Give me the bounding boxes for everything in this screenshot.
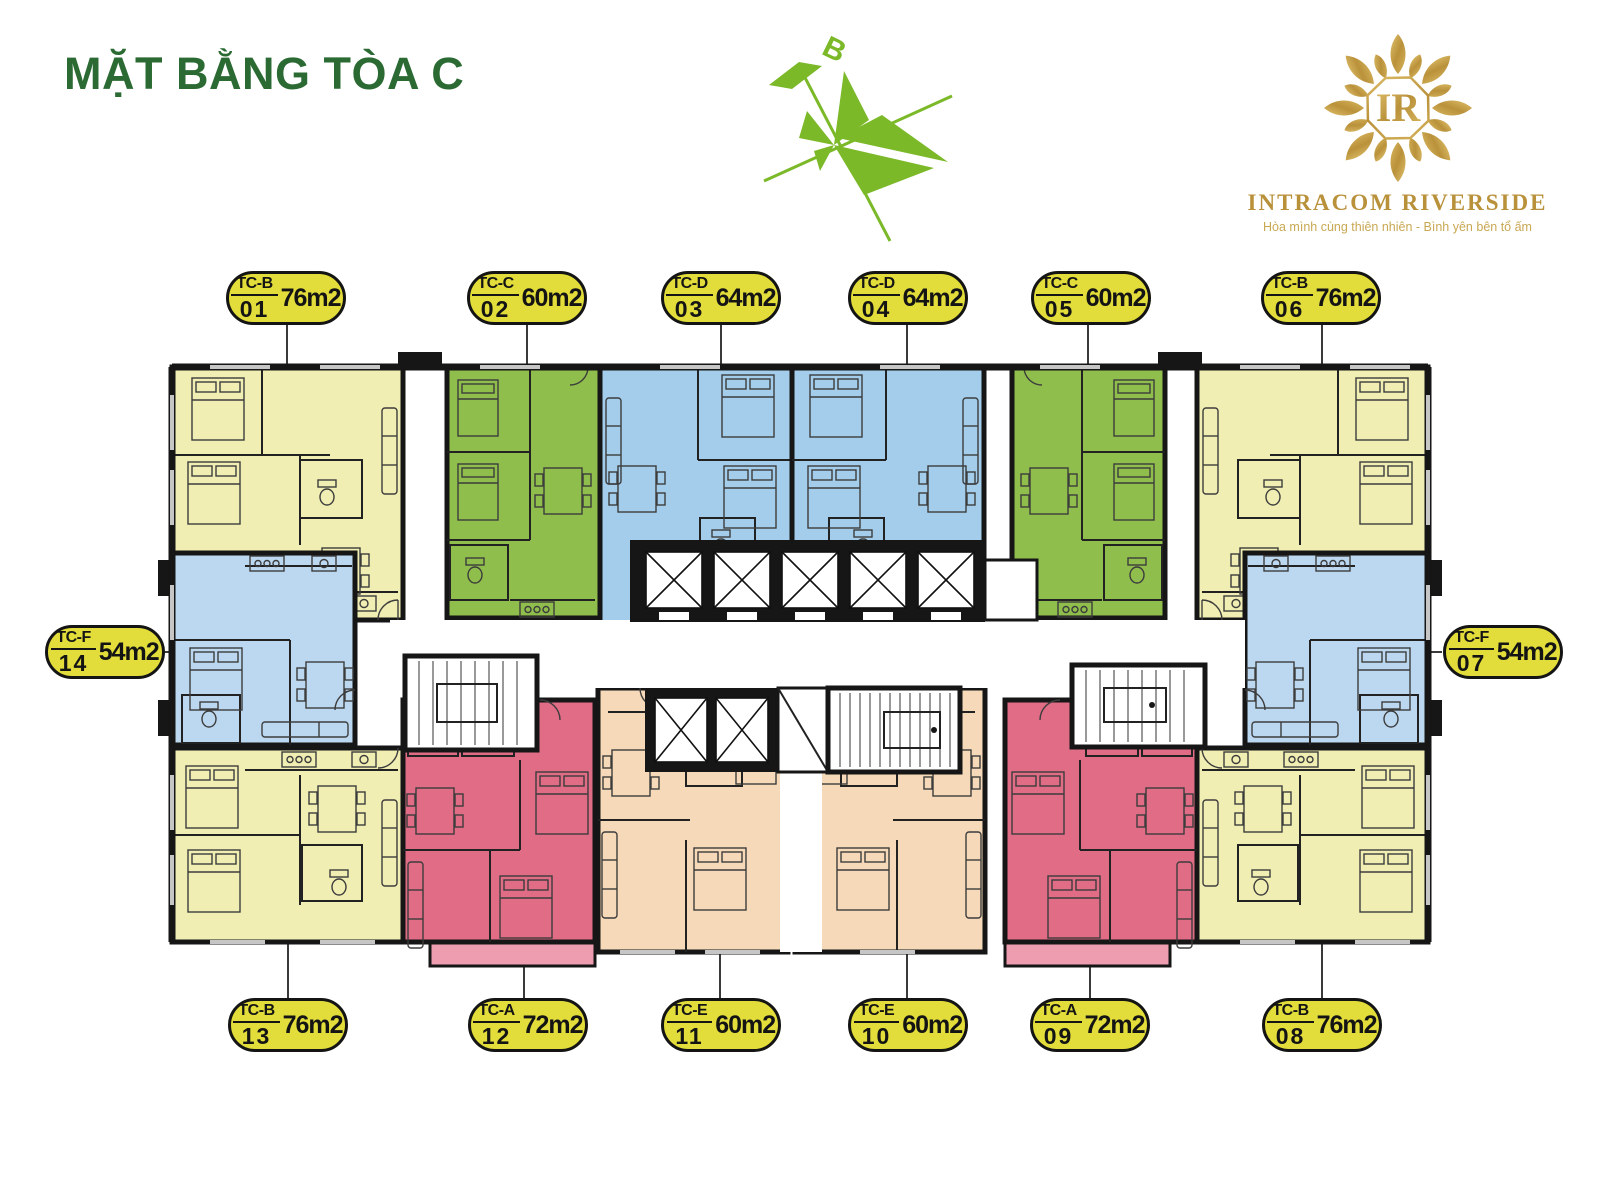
unit-area: 64m2 [716, 284, 776, 313]
unit-area: 76m2 [281, 284, 341, 313]
unit-badge-02: TC-C0260m2 [467, 271, 587, 325]
unit-code: TC-A [1035, 1003, 1081, 1023]
unit-badge-14: TC-F1454m2 [45, 625, 165, 679]
stairs-right [1072, 665, 1205, 747]
compass-north-label: B [817, 30, 851, 69]
north-compass: B [742, 10, 957, 255]
unit-code: TC-B [1266, 276, 1312, 296]
unit-number: 13 [242, 1023, 272, 1048]
unit-number: 01 [240, 296, 270, 321]
unit-area: 60m2 [1086, 284, 1146, 313]
elevator-pair [645, 688, 778, 772]
utility-room [985, 560, 1037, 620]
unit-area: 72m2 [523, 1011, 583, 1040]
brand-name: INTRACOM RIVERSIDE [1245, 190, 1550, 216]
unit-number: 06 [1275, 296, 1305, 321]
unit-number: 10 [862, 1023, 892, 1048]
unit-code: TC-D [853, 276, 899, 296]
unit-number: 14 [59, 650, 89, 675]
unit-badge-04: TC-D0464m2 [848, 271, 968, 325]
unit-area: 72m2 [1085, 1011, 1145, 1040]
unit-number: 09 [1044, 1023, 1074, 1048]
unit-area: 64m2 [903, 284, 963, 313]
unit-badge-01: TC-B0176m2 [226, 271, 346, 325]
floorplan-page: { "title": "MẶT BẰNG TÒA C", "compass": … [0, 0, 1600, 1197]
page-title: MẶT BẰNG TÒA C [64, 48, 464, 100]
unit-code: TC-F [1449, 630, 1493, 650]
unit-code: TC-B [233, 1003, 279, 1023]
unit-code: TC-E [854, 1003, 899, 1023]
unit-number: 02 [481, 296, 511, 321]
unit-number: 11 [675, 1023, 703, 1048]
unit-area: 54m2 [1497, 638, 1557, 667]
unit-badge-12: TC-A1272m2 [468, 998, 588, 1052]
unit-code: TC-B [231, 276, 277, 296]
logo-flower-icon: IR [1313, 28, 1483, 188]
unit-area: 60m2 [715, 1011, 775, 1040]
unit-code: TC-E [667, 1003, 712, 1023]
unit-area: 76m2 [1316, 284, 1376, 313]
unit-area: 60m2 [522, 284, 582, 313]
logo-monogram: IR [1375, 85, 1421, 130]
stairs-left [405, 656, 537, 750]
stairs-center [828, 688, 960, 772]
unit-code: TC-A [473, 1003, 519, 1023]
elevator-bank [630, 540, 985, 622]
unit-code: TC-C [472, 276, 518, 296]
unit-code: TC-C [1036, 276, 1082, 296]
unit-badge-13: TC-B1376m2 [228, 998, 348, 1052]
unit-number: 08 [1276, 1023, 1306, 1048]
unit-badge-10: TC-E1060m2 [848, 998, 968, 1052]
unit-badge-06: TC-B0676m2 [1261, 271, 1381, 325]
brand-tagline: Hòa mình cùng thiên nhiên - Bình yên bên… [1245, 220, 1550, 234]
unit-number: 05 [1045, 296, 1075, 321]
compass-graphic: B [764, 30, 952, 241]
unit-badge-05: TC-C0560m2 [1031, 271, 1151, 325]
unit-area: 60m2 [902, 1011, 962, 1040]
unit-area: 76m2 [283, 1011, 343, 1040]
lower-center-gap [780, 772, 822, 952]
unit-badge-08: TC-B0876m2 [1262, 998, 1382, 1052]
unit-area: 76m2 [1317, 1011, 1377, 1040]
unit-badge-03: TC-D0364m2 [661, 271, 781, 325]
unit-code: TC-F [51, 630, 95, 650]
unit-badge-07: TC-F0754m2 [1443, 625, 1563, 679]
unit-badge-11: TC-E1160m2 [661, 998, 781, 1052]
unit-number: 04 [862, 296, 892, 321]
unit-number: 07 [1457, 650, 1487, 675]
unit-code: TC-D [666, 276, 712, 296]
unit-code: TC-B [1267, 1003, 1313, 1023]
unit-number: 12 [482, 1023, 512, 1048]
unit-badge-09: TC-A0972m2 [1030, 998, 1150, 1052]
unit-number: 03 [675, 296, 705, 321]
brand-logo: IR INTRACOM RIVERSIDE Hòa mình cùng thiê… [1245, 28, 1550, 234]
unit-area: 54m2 [99, 638, 159, 667]
